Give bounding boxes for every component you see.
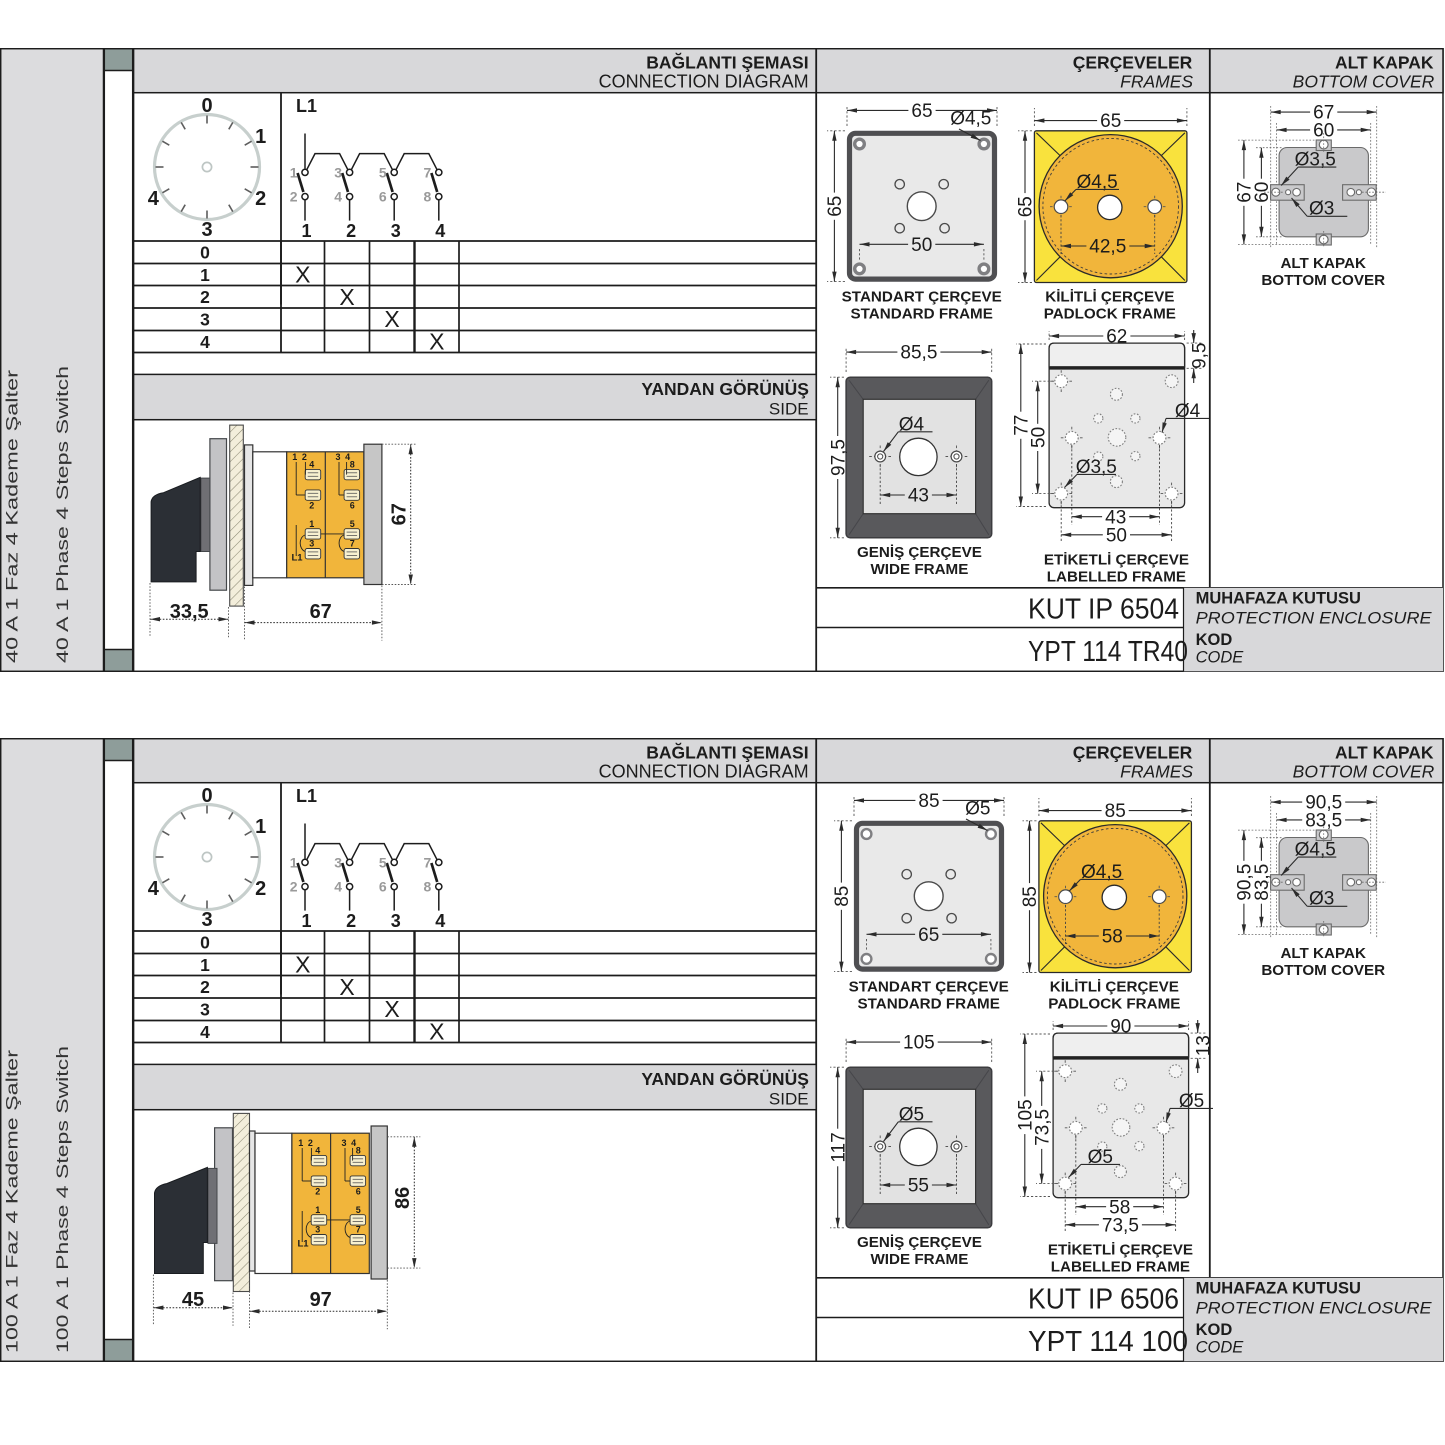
svg-text:4: 4 [334,879,342,895]
svg-text:X: X [429,1019,444,1045]
svg-text:STANDARD FRAME: STANDARD FRAME [851,306,993,323]
svg-text:0: 0 [201,95,212,117]
svg-text:MUHAFAZA KUTUSU: MUHAFAZA KUTUSU [1196,590,1361,608]
svg-text:4: 4 [148,188,160,210]
svg-text:67: 67 [389,503,411,525]
svg-text:2: 2 [308,1138,313,1148]
svg-text:PADLOCK FRAME: PADLOCK FRAME [1048,996,1180,1013]
svg-text:3: 3 [201,909,212,931]
svg-text:FRAMES: FRAMES [1120,761,1193,781]
svg-text:X: X [295,952,310,978]
svg-text:85: 85 [1020,886,1041,907]
svg-text:97,5: 97,5 [828,439,849,476]
svg-text:FRAMES: FRAMES [1120,71,1193,91]
svg-text:7: 7 [424,164,432,180]
svg-text:YPT 114 100: YPT 114 100 [1028,1326,1188,1358]
svg-text:4: 4 [200,332,210,352]
svg-text:PROTECTION ENCLOSURE: PROTECTION ENCLOSURE [1196,610,1433,628]
svg-text:60: 60 [1313,121,1334,142]
svg-text:ALT KAPAK: ALT KAPAK [1335,742,1434,762]
svg-text:60: 60 [1252,182,1273,203]
svg-text:KUT IP 6504: KUT IP 6504 [1028,594,1179,626]
svg-text:40 A 1 Faz 4 Kademe Şalter: 40 A 1 Faz 4 Kademe Şalter [4,369,22,663]
svg-text:ALT KAPAK: ALT KAPAK [1280,255,1366,272]
svg-text:65: 65 [1100,111,1121,132]
svg-text:85: 85 [918,791,939,812]
svg-text:BOTTOM COVER: BOTTOM COVER [1261,272,1385,289]
svg-text:86: 86 [392,1187,414,1209]
svg-text:2: 2 [309,501,314,511]
svg-text:STANDART ÇERÇEVE: STANDART ÇERÇEVE [842,288,1002,305]
svg-text:STANDARD FRAME: STANDARD FRAME [858,996,1000,1013]
svg-text:X: X [384,996,399,1022]
svg-text:ALT KAPAK: ALT KAPAK [1280,945,1366,962]
svg-text:45: 45 [182,1289,204,1311]
svg-text:X: X [339,284,354,310]
svg-text:6: 6 [379,879,387,895]
svg-text:7: 7 [350,539,355,549]
svg-text:100 A 1 Faz 4 Kademe Şalter: 100 A 1 Faz 4 Kademe Şalter [4,1049,22,1353]
svg-text:CODE: CODE [1196,648,1245,666]
svg-text:PROTECTION ENCLOSURE: PROTECTION ENCLOSURE [1196,1300,1433,1318]
svg-text:3: 3 [335,452,340,462]
svg-text:2: 2 [255,878,266,900]
svg-text:2: 2 [290,189,298,205]
svg-text:3: 3 [200,310,210,330]
svg-text:MUHAFAZA KUTUSU: MUHAFAZA KUTUSU [1196,1280,1361,1298]
svg-text:50: 50 [1028,427,1049,448]
svg-text:65: 65 [1016,196,1037,217]
svg-text:LABELLED FRAME: LABELLED FRAME [1047,569,1186,586]
svg-text:4: 4 [435,221,445,241]
svg-text:WIDE FRAME: WIDE FRAME [870,561,968,578]
svg-text:0: 0 [201,785,212,807]
svg-text:PADLOCK FRAME: PADLOCK FRAME [1044,306,1176,323]
svg-text:4: 4 [309,460,314,470]
svg-text:GENİŞ ÇERÇEVE: GENİŞ ÇERÇEVE [857,1234,982,1251]
svg-text:97: 97 [310,1289,332,1311]
svg-text:SIDE: SIDE [769,400,809,419]
svg-text:65: 65 [918,925,939,946]
svg-text:BOTTOM COVER: BOTTOM COVER [1293,761,1435,781]
svg-text:2: 2 [346,221,356,241]
svg-text:YANDAN GÖRÜNÜŞ: YANDAN GÖRÜNÜŞ [641,379,809,399]
svg-text:1: 1 [292,452,297,462]
svg-text:1: 1 [200,265,210,285]
svg-text:Ø4: Ø4 [899,415,925,436]
svg-text:BOTTOM COVER: BOTTOM COVER [1293,71,1435,91]
svg-text:6: 6 [379,189,387,205]
svg-text:Ø4,5: Ø4,5 [950,109,991,130]
svg-text:33,5: 33,5 [170,601,209,623]
svg-text:1: 1 [290,164,298,180]
svg-text:BAĞLANTI ŞEMASI: BAĞLANTI ŞEMASI [646,741,808,762]
svg-text:4: 4 [200,1022,210,1042]
svg-text:7: 7 [356,1225,361,1235]
svg-text:2: 2 [290,879,298,895]
svg-text:58: 58 [1102,927,1123,948]
svg-text:KİLİTLİ ÇERÇEVE: KİLİTLİ ÇERÇEVE [1045,288,1174,305]
svg-text:2: 2 [315,1187,320,1197]
svg-text:50: 50 [1106,525,1127,546]
svg-text:L1: L1 [296,96,317,116]
svg-text:4: 4 [334,189,342,205]
svg-text:1: 1 [301,221,311,241]
svg-text:2: 2 [200,977,210,997]
svg-text:5: 5 [379,164,387,180]
svg-text:8: 8 [424,879,432,895]
svg-text:X: X [429,329,444,355]
svg-text:ETİKETLİ ÇERÇEVE: ETİKETLİ ÇERÇEVE [1044,551,1189,568]
svg-text:67: 67 [310,601,332,623]
svg-text:3: 3 [309,539,314,549]
svg-text:43: 43 [908,486,929,507]
svg-text:6: 6 [350,501,355,511]
svg-text:KOD: KOD [1196,1321,1233,1339]
svg-text:105: 105 [903,1033,935,1054]
svg-text:4: 4 [148,878,160,900]
svg-text:L1: L1 [296,786,317,806]
svg-text:YPT 114 TR40: YPT 114 TR40 [1028,636,1188,668]
svg-text:ÇERÇEVELER: ÇERÇEVELER [1073,742,1193,762]
svg-text:LABELLED FRAME: LABELLED FRAME [1051,1259,1190,1276]
svg-text:X: X [384,306,399,332]
svg-text:BOTTOM COVER: BOTTOM COVER [1261,962,1385,979]
svg-text:1: 1 [255,126,266,148]
svg-text:50: 50 [911,235,932,256]
svg-text:3: 3 [341,1138,346,1148]
svg-text:5: 5 [356,1205,361,1215]
svg-text:83,5: 83,5 [1305,811,1342,832]
svg-text:0: 0 [200,243,210,263]
svg-text:3: 3 [391,911,401,931]
svg-text:65: 65 [911,101,932,122]
svg-text:BAĞLANTI ŞEMASI: BAĞLANTI ŞEMASI [646,51,808,72]
svg-text:1: 1 [255,816,266,838]
svg-text:3: 3 [334,164,342,180]
svg-text:STANDART ÇERÇEVE: STANDART ÇERÇEVE [849,978,1009,995]
svg-text:3: 3 [391,221,401,241]
svg-text:100 A 1 Phase 4 Steps Switch: 100 A 1 Phase 4 Steps Switch [54,1046,72,1353]
svg-text:85: 85 [832,886,853,907]
svg-text:4: 4 [435,911,445,931]
svg-text:1: 1 [309,519,314,529]
svg-text:117: 117 [828,1132,849,1162]
svg-text:40 A 1 Phase 4 Steps Switch: 40 A 1 Phase 4 Steps Switch [54,366,72,663]
svg-text:CONNECTION DIAGRAM: CONNECTION DIAGRAM [599,71,809,91]
svg-text:1: 1 [200,955,210,975]
svg-text:73,5: 73,5 [1102,1215,1139,1236]
svg-text:83,5: 83,5 [1252,864,1273,901]
svg-text:3: 3 [200,1000,210,1020]
svg-text:5: 5 [350,519,355,529]
svg-text:YANDAN GÖRÜNÜŞ: YANDAN GÖRÜNÜŞ [641,1069,809,1089]
svg-text:4: 4 [315,1146,320,1156]
svg-text:85,5: 85,5 [900,343,937,364]
svg-text:GENİŞ ÇERÇEVE: GENİŞ ÇERÇEVE [857,544,982,561]
svg-text:L1: L1 [298,1239,310,1250]
svg-text:KUT IP 6506: KUT IP 6506 [1028,1284,1179,1316]
svg-text:X: X [295,262,310,288]
svg-text:65: 65 [825,196,846,217]
svg-text:KİLİTLİ ÇERÇEVE: KİLİTLİ ÇERÇEVE [1050,978,1179,995]
svg-text:SIDE: SIDE [769,1090,809,1109]
svg-text:1: 1 [315,1205,320,1215]
svg-text:9,5: 9,5 [1190,342,1211,368]
svg-text:X: X [339,974,354,1000]
svg-text:8: 8 [356,1146,361,1156]
svg-text:5: 5 [379,854,387,870]
svg-text:0: 0 [200,933,210,953]
svg-text:85: 85 [1105,801,1126,822]
svg-text:1: 1 [301,911,311,931]
svg-text:KOD: KOD [1196,631,1233,649]
svg-text:55: 55 [908,1176,929,1197]
svg-text:2: 2 [346,911,356,931]
svg-text:8: 8 [424,189,432,205]
svg-text:2: 2 [302,452,307,462]
svg-text:73,5: 73,5 [1032,1109,1053,1146]
svg-text:1: 1 [298,1138,303,1148]
svg-text:62: 62 [1106,327,1127,348]
svg-text:ALT KAPAK: ALT KAPAK [1335,52,1434,72]
svg-text:Ø5: Ø5 [965,799,990,820]
svg-text:3: 3 [334,854,342,870]
svg-text:13: 13 [1194,1035,1215,1056]
svg-text:2: 2 [200,287,210,307]
svg-text:90: 90 [1110,1017,1131,1038]
svg-text:3: 3 [315,1225,320,1235]
svg-text:CONNECTION DIAGRAM: CONNECTION DIAGRAM [599,761,809,781]
svg-text:L1: L1 [292,553,304,564]
svg-text:3: 3 [201,219,212,241]
svg-text:WIDE FRAME: WIDE FRAME [870,1251,968,1268]
svg-text:ETİKETLİ ÇERÇEVE: ETİKETLİ ÇERÇEVE [1048,1241,1193,1258]
svg-text:42,5: 42,5 [1089,237,1126,258]
svg-text:8: 8 [350,460,355,470]
svg-text:1: 1 [290,854,298,870]
svg-text:ÇERÇEVELER: ÇERÇEVELER [1073,52,1193,72]
svg-text:7: 7 [424,854,432,870]
svg-text:CODE: CODE [1196,1338,1245,1356]
svg-text:6: 6 [356,1187,361,1197]
svg-text:2: 2 [255,188,266,210]
